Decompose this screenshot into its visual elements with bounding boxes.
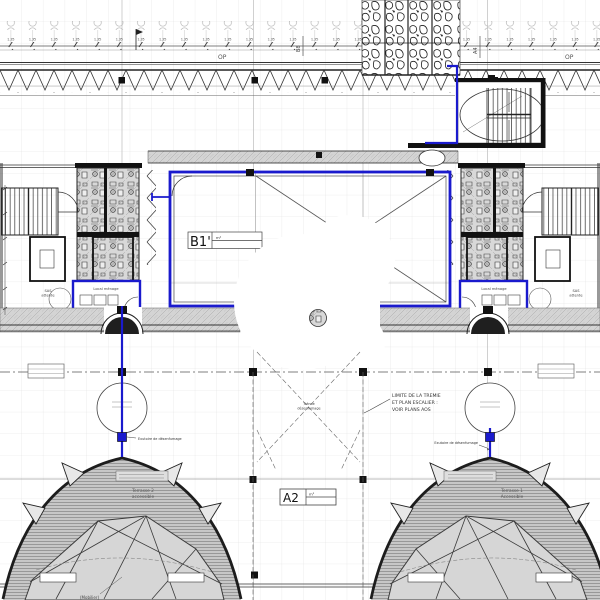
- door-opening-right: [467, 306, 509, 334]
- elevator-shaft: [30, 237, 65, 281]
- accordion-wall: [142, 170, 156, 265]
- op-label-right: OP: [565, 54, 574, 61]
- room-a2-area: m²: [309, 492, 315, 497]
- floor-plan: 1.35: [0, 0, 600, 600]
- svg-text:A4: A4: [473, 47, 479, 54]
- rock-hatch-block: [362, 0, 460, 75]
- sas-attente-left: SAS: [44, 289, 52, 293]
- stairs: [2, 188, 58, 235]
- svg-text:Accessible: Accessible: [501, 494, 524, 500]
- svg-text:attente: attente: [569, 294, 583, 298]
- svg-text:attente: attente: [41, 294, 55, 298]
- grid-bubbles: [0, 21, 600, 30]
- terrace-left-label: Terrasse 2: [131, 488, 154, 494]
- label-box-right: [538, 364, 574, 378]
- sas-attente-right: SAS: [572, 289, 580, 293]
- room-a2-name: A2: [283, 491, 299, 505]
- svg-text:ET PLAN ESCALIER :: ET PLAN ESCALIER :: [392, 400, 438, 406]
- apex-annotation-left: Exutoire de désenfumage: [138, 437, 182, 441]
- local-menage-left: Local ménage: [93, 287, 119, 291]
- svg-text:accessible: accessible: [132, 494, 155, 500]
- tremie-label: Trémie: [302, 402, 314, 406]
- column-circle: [419, 150, 445, 166]
- room-b1-name: B1': [190, 235, 211, 250]
- column-circle: [310, 310, 327, 327]
- svg-text:désenfumage: désenfumage: [297, 407, 320, 411]
- label-box-left: [28, 364, 64, 378]
- room-b1-area: m²: [216, 235, 222, 240]
- op-label-left: OP: [218, 54, 227, 61]
- local-menage-right: Local ménage: [481, 287, 507, 291]
- apex-annotation-right: Exutoire de désenfumage: [434, 441, 478, 445]
- svg-text:(Mobilier): (Mobilier): [80, 595, 99, 600]
- svg-text:B8: B8: [296, 45, 302, 52]
- svg-text:VOIR PLANS AOS: VOIR PLANS AOS: [392, 407, 431, 413]
- svg-text:LIMITE DE LA TREMIE: LIMITE DE LA TREMIE: [392, 393, 441, 399]
- dome-tag: [116, 471, 168, 481]
- room-b1-label: B1' m²: [188, 232, 262, 250]
- terrace-right-label: Terrasse 1: [500, 488, 523, 494]
- floor-plan-svg: 1.35: [0, 0, 600, 600]
- room-a2-label: A2 m²: [280, 489, 336, 505]
